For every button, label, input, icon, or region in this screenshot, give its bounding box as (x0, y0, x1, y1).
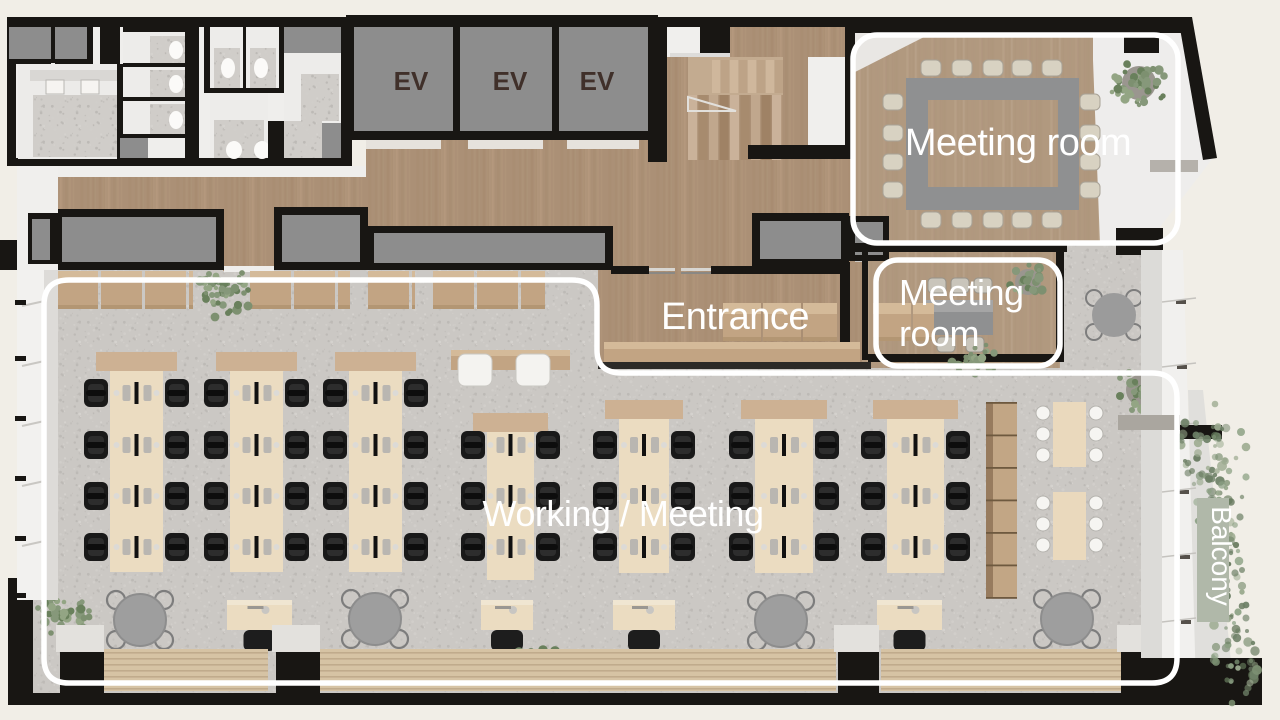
svg-text:Entrance: Entrance (661, 296, 809, 338)
svg-text:Balcony: Balcony (1206, 506, 1237, 606)
svg-text:Meeting room: Meeting room (905, 122, 1131, 164)
svg-text:EV: EV (580, 66, 615, 96)
svg-text:EV: EV (493, 66, 528, 96)
svg-text:Working / Meeting: Working / Meeting (483, 493, 764, 534)
svg-text:room: room (899, 313, 979, 354)
svg-text:EV: EV (394, 66, 429, 96)
svg-text:Meeting: Meeting (899, 272, 1024, 313)
